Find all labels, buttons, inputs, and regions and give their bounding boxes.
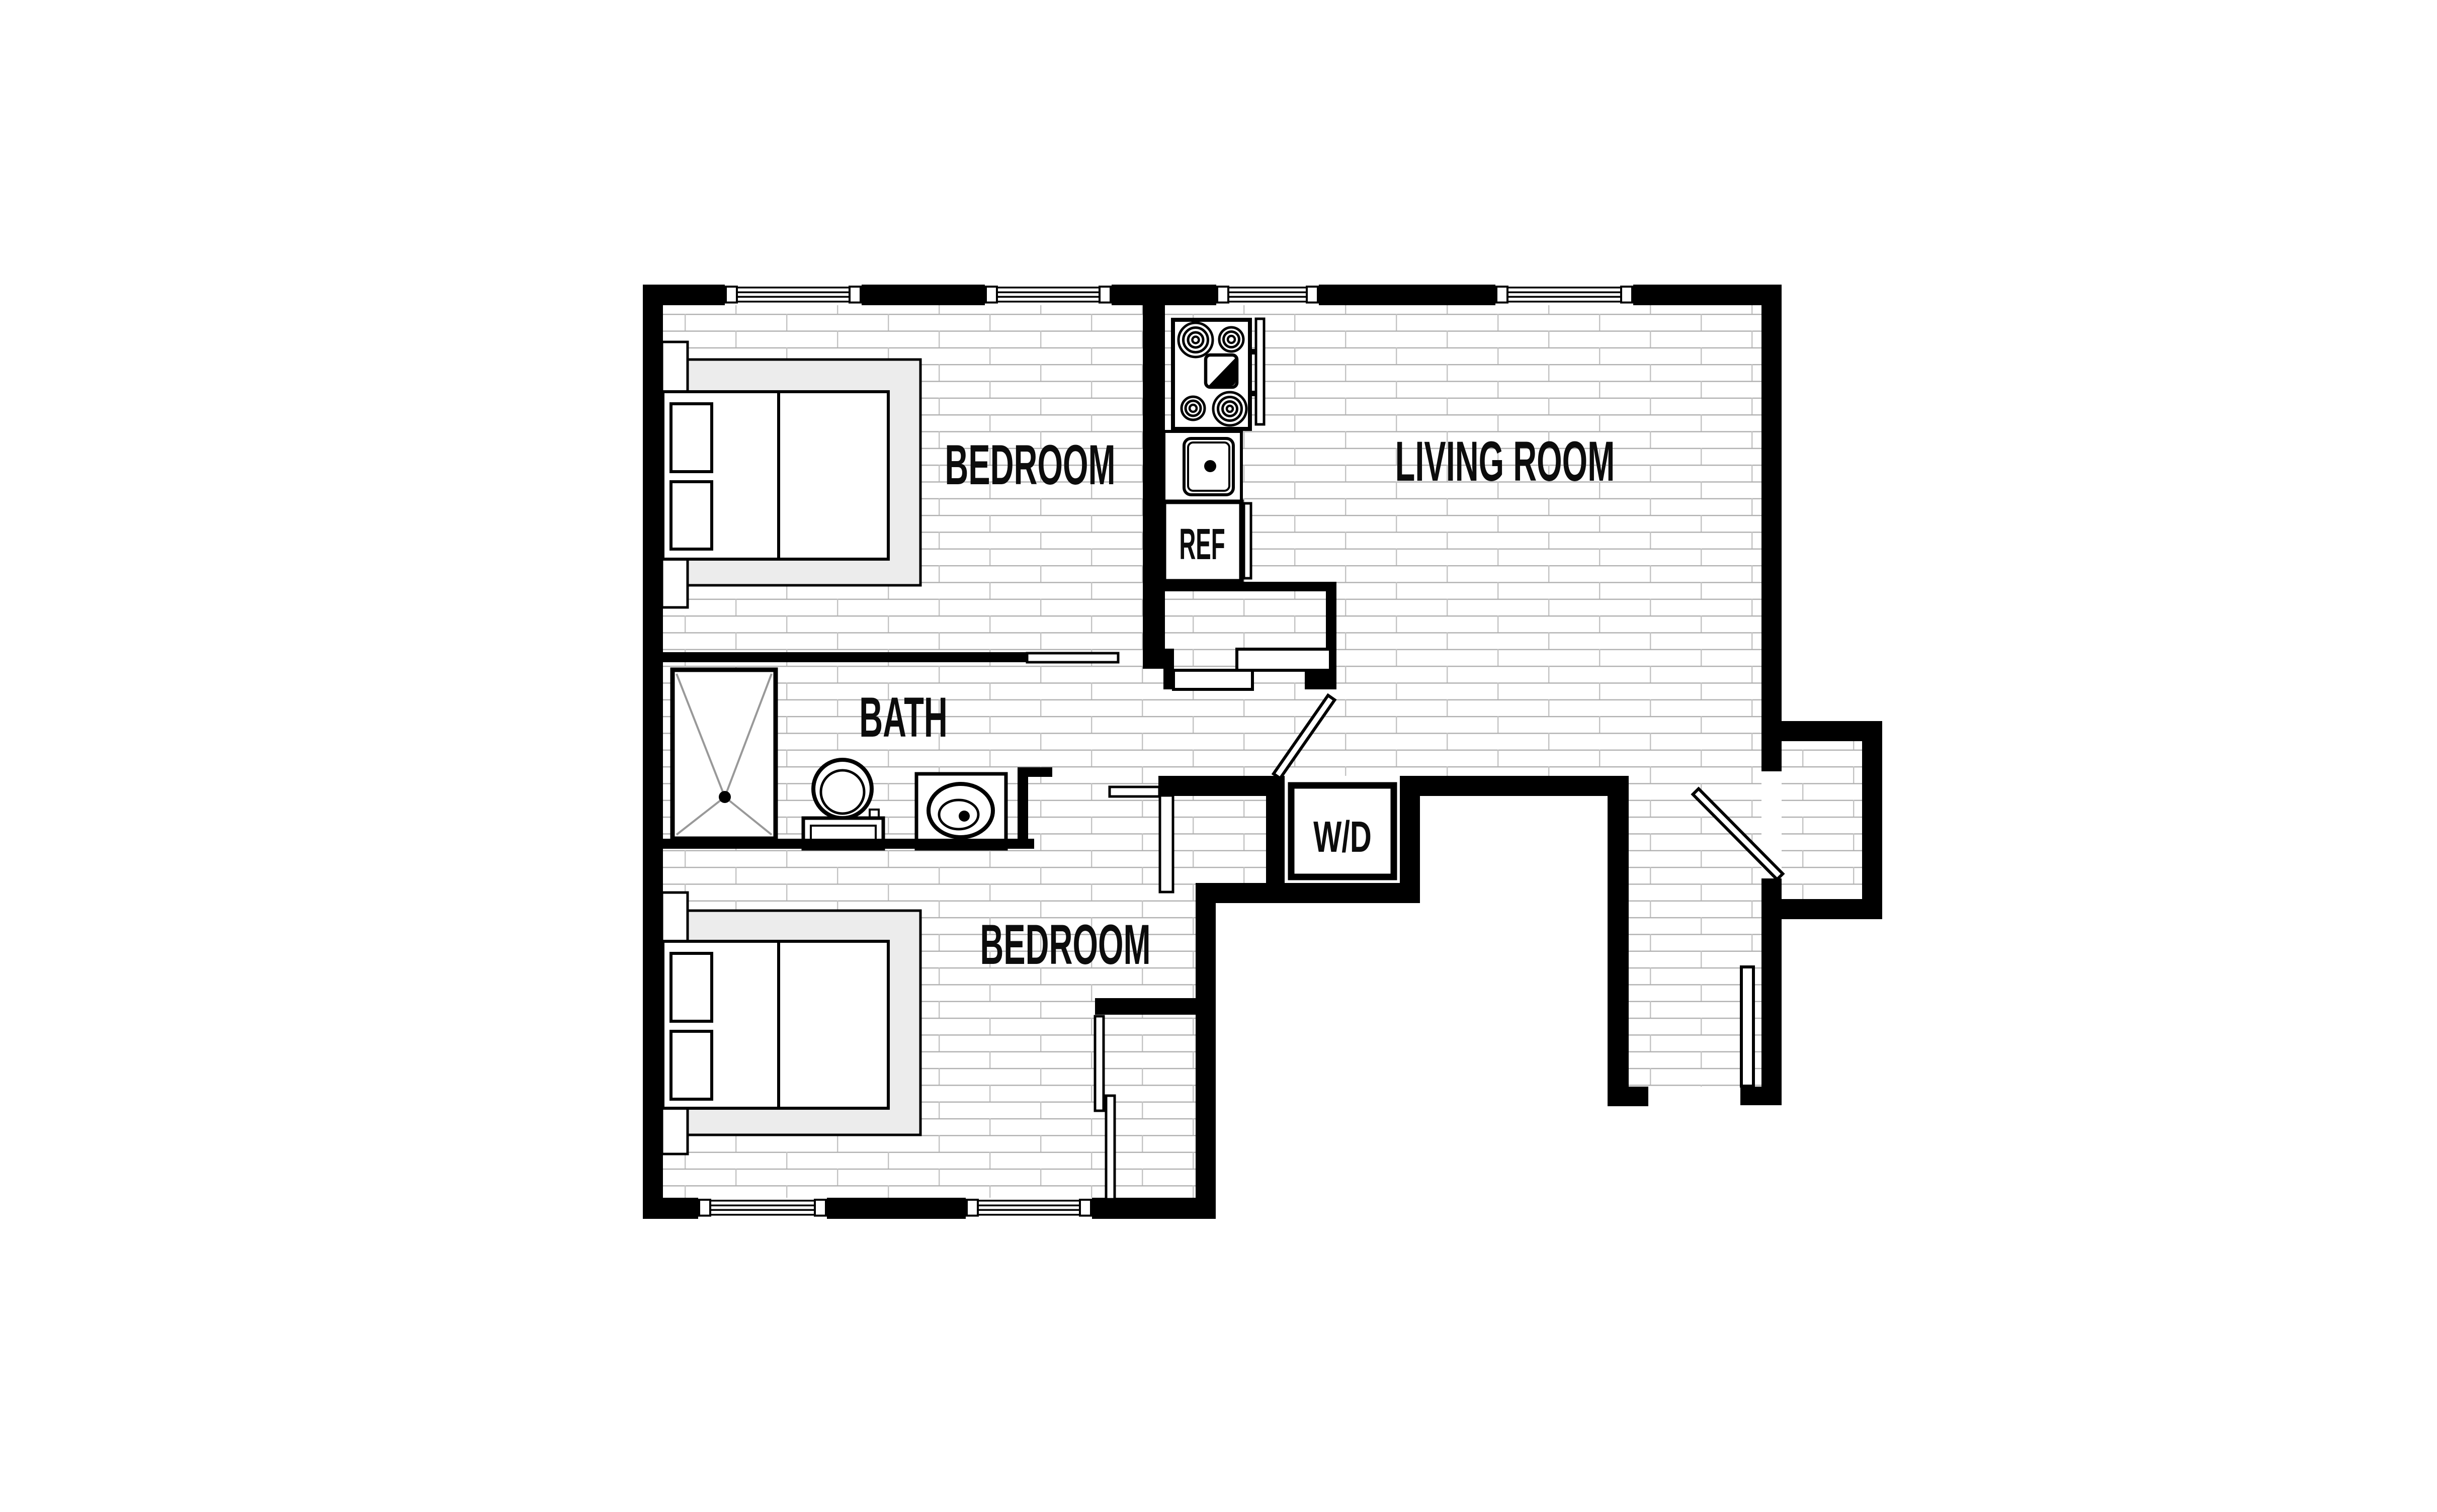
svg-text:LIVING ROOM: LIVING ROOM	[1395, 430, 1615, 493]
svg-text:BEDROOM: BEDROOM	[980, 914, 1150, 976]
svg-text:BATH: BATH	[859, 686, 948, 749]
svg-text:BEDROOM: BEDROOM	[945, 434, 1115, 497]
svg-text:W/D: W/D	[1313, 813, 1372, 861]
svg-text:REF: REF	[1179, 519, 1225, 569]
